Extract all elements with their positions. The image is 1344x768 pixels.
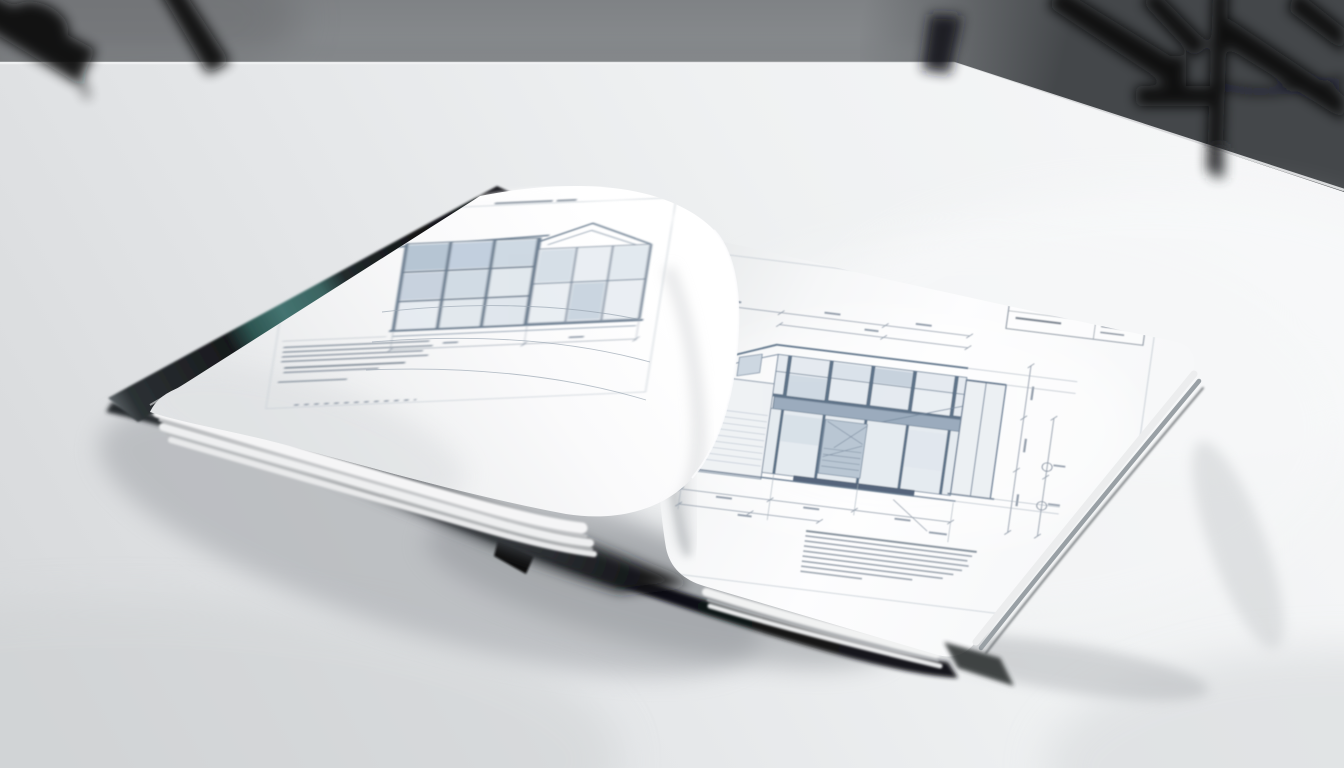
studio-scene: [0, 0, 1344, 768]
scene-canvas: [0, 0, 1344, 768]
